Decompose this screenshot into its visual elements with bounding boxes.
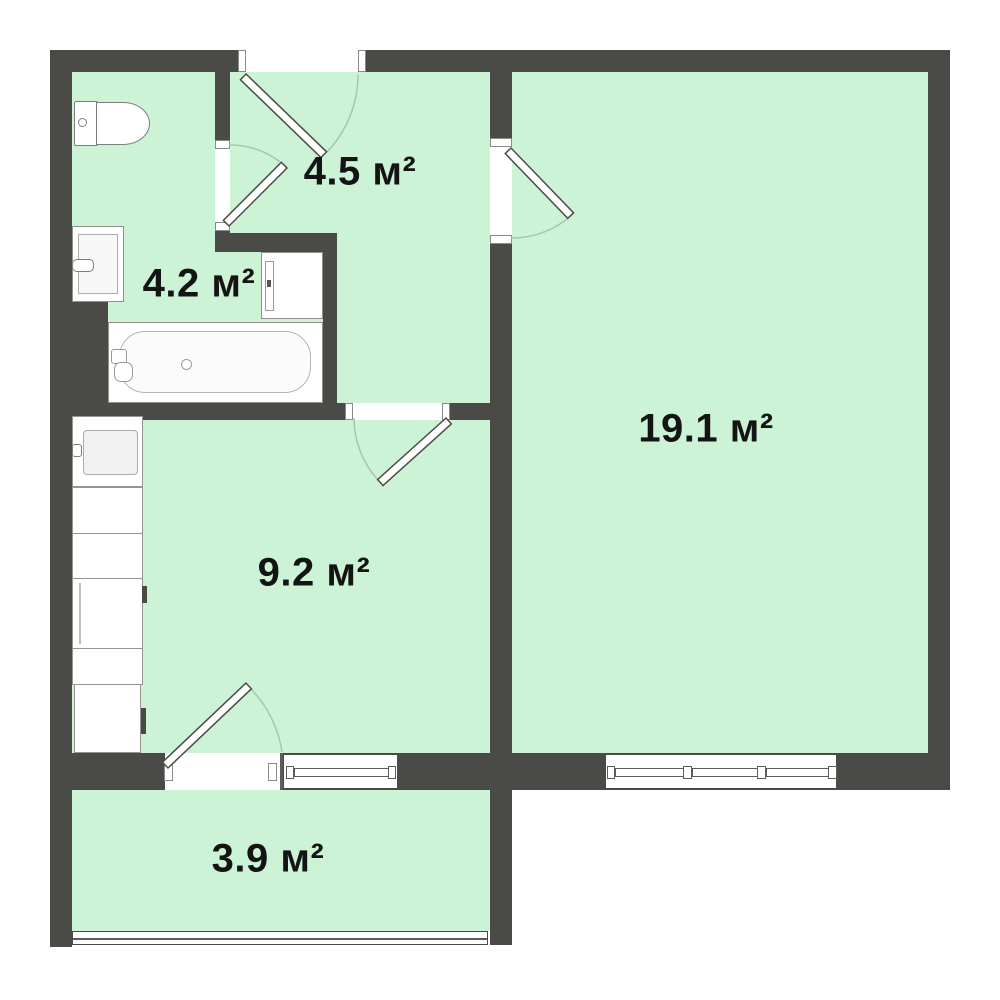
bathtub-faucet-handle-icon	[114, 362, 133, 382]
wall-bathroom-horizontal	[215, 233, 337, 252]
living-room-window-mullion-2	[757, 766, 766, 779]
washing-machine-knob	[267, 280, 271, 287]
kitchen-cabinet-2	[72, 533, 143, 579]
balcony-glazing	[72, 931, 488, 945]
kitchen-cabinet-1	[72, 487, 143, 534]
bathroom-door-jamb-bottom	[215, 222, 230, 231]
kitchen-window-sash	[294, 768, 390, 777]
living-room-window	[605, 754, 837, 789]
stove-icon	[72, 578, 143, 649]
stove-inner-line	[79, 583, 81, 644]
fridge-icon	[74, 684, 141, 753]
kitchen-window-cap-left	[286, 766, 294, 779]
wall-right	[928, 50, 950, 790]
living-room-window-cap-left	[607, 766, 615, 779]
kitchen-sink-basin	[83, 430, 138, 475]
balcony-area-label: 3.9 м²	[212, 837, 325, 882]
living-room-door-jamb-top	[490, 138, 512, 147]
kitchen-cabinet-3	[72, 648, 143, 685]
bathtub-basin	[119, 331, 311, 393]
hallway-area-label: 4.5 м²	[304, 150, 417, 195]
living-room-window-cap-right	[828, 766, 837, 779]
living-room-window-sash-1	[615, 768, 684, 777]
toilet-flush-button-icon	[78, 118, 87, 127]
wall-bathroom-lower-right	[323, 252, 337, 403]
kitchen-door-opening	[345, 403, 450, 420]
wall-kitchen-top-right	[450, 403, 490, 420]
kitchen-door-jamb-right	[442, 403, 450, 420]
living-room-door-opening	[490, 138, 512, 244]
wall-top-right	[366, 50, 950, 72]
toilet-bowl-icon	[96, 102, 150, 145]
living-room-window-sash-3	[766, 768, 829, 777]
living-room-window-mullion-1	[683, 766, 692, 779]
entry-door-jamb-right	[358, 50, 366, 72]
entry-door-opening	[238, 50, 366, 72]
bathroom-area-label: 4.2 м²	[143, 262, 256, 307]
floor-plan: 4.5 м² 4.2 м² 19.1 м² 9.2 м² 3.9 м²	[0, 0, 1000, 1000]
living-room-area-label: 19.1 м²	[638, 407, 773, 452]
balcony-door-jamb-left	[164, 763, 173, 781]
wall-left	[50, 50, 72, 947]
stove-handle	[142, 586, 147, 603]
kitchen-area-label: 9.2 м²	[258, 551, 371, 596]
bathroom-door-opening	[215, 140, 230, 231]
balcony-door-jamb-right	[268, 763, 277, 781]
wall-top-left	[50, 50, 238, 72]
living-room-door-jamb-bottom	[490, 235, 512, 244]
kitchen-sink-tap-icon	[72, 444, 82, 457]
fridge-handle	[141, 708, 146, 734]
entry-door-jamb-left	[238, 50, 246, 72]
kitchen-door-jamb-left	[345, 403, 353, 420]
bathroom-sink-tap-icon	[72, 259, 94, 272]
kitchen-window	[283, 754, 398, 789]
balcony-door-opening	[165, 753, 281, 790]
balcony-glazing-midline	[73, 938, 487, 940]
wall-bathroom-pier	[72, 302, 108, 403]
kitchen-window-cap-right	[388, 766, 396, 779]
living-room-window-sash-2	[692, 768, 758, 777]
bathroom-door-jamb-top	[215, 140, 230, 149]
bathtub-drain-icon	[181, 359, 192, 370]
